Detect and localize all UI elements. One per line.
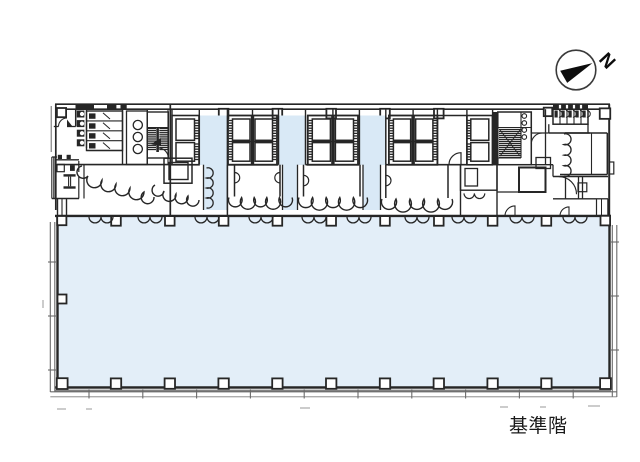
svg-text:基準階: 基準階 <box>509 415 568 437</box>
